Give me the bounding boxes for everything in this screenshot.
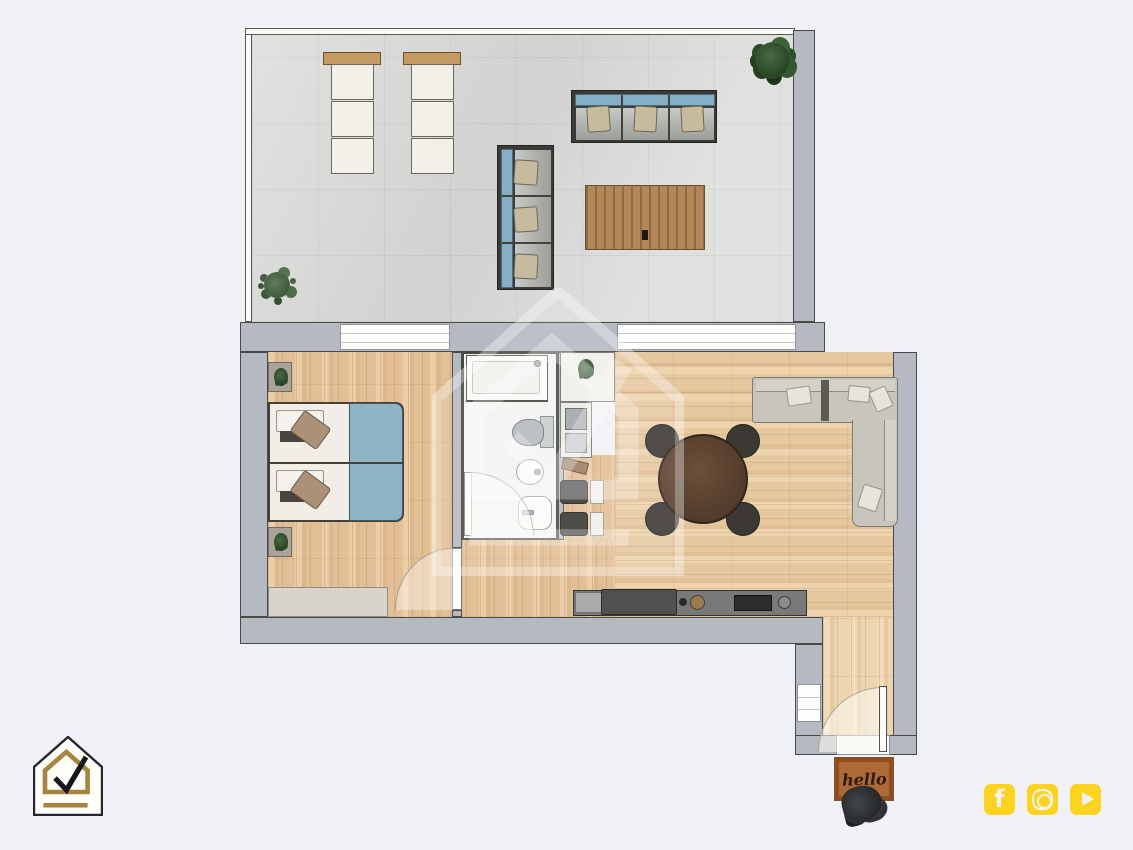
facebook-icon[interactable]: f: [984, 784, 1015, 815]
corner-sofa-vertical: [852, 420, 898, 527]
house-check-logo-icon: [33, 736, 103, 816]
sofa-pillow: [786, 385, 812, 406]
corridor-window: [797, 684, 821, 722]
nightstand: [268, 362, 292, 392]
nightstand-plant-icon: [274, 368, 288, 386]
instagram-icon[interactable]: [1027, 784, 1058, 815]
lounger-cushion: [331, 64, 374, 100]
sofa-pillow: [513, 253, 538, 279]
lounger-cushion: [411, 64, 454, 100]
seat-divider: [502, 242, 552, 244]
corner-sofa-horizontal: [752, 377, 898, 423]
sun-lounger: [403, 52, 461, 174]
seat-divider: [621, 95, 623, 141]
youtube-play-triangle: [1082, 792, 1094, 806]
instagram-dot: [1048, 791, 1051, 794]
sofa-back: [884, 420, 896, 521]
sofa-pillow: [586, 105, 611, 133]
potted-plant-icon: [756, 42, 790, 78]
wardrobe: [268, 587, 388, 617]
lounger-cushion: [331, 101, 374, 137]
lounger-cushion: [411, 138, 454, 174]
kitchen-counter: [573, 590, 807, 616]
cooktop: [734, 595, 772, 611]
bottom-wall: [240, 617, 823, 644]
table-handle: [642, 230, 648, 240]
terrace-wall-top: [245, 28, 795, 35]
counter-dark-slab: [601, 589, 677, 615]
small-tree-icon: [264, 272, 290, 298]
instagram-lens: [1037, 794, 1052, 809]
sofa-pillow: [513, 206, 539, 233]
double-bed: [268, 402, 404, 522]
counter-knob-icon: [679, 598, 687, 606]
sofa-back: [575, 94, 715, 106]
bed-split-line: [270, 462, 404, 464]
sofa-pillow: [633, 105, 657, 132]
bedroom-bathroom-wall-end: [452, 610, 462, 617]
seat-divider: [502, 195, 552, 197]
left-wall: [240, 352, 268, 617]
terrace-wall-right: [793, 30, 815, 322]
lounger-cushion: [411, 101, 454, 137]
sofa-pillow: [680, 105, 704, 132]
sofa-pillow: [847, 385, 871, 403]
seat-divider: [668, 95, 670, 141]
sofa-divider: [821, 380, 829, 421]
sofa-pillow: [857, 483, 883, 512]
sun-lounger: [323, 52, 381, 174]
outdoor-sofa-vertical: [497, 145, 554, 290]
floor-plan-canvas: hello f: [0, 0, 1133, 850]
entry-door-leaf: [879, 686, 887, 752]
nightstand: [268, 527, 292, 557]
lounger-cushion: [331, 138, 374, 174]
terrace-wall-left: [245, 28, 252, 322]
sofa-back: [501, 149, 513, 288]
youtube-icon[interactable]: [1070, 784, 1101, 815]
outdoor-sofa-horizontal: [571, 90, 717, 143]
nightstand-plant-icon: [274, 533, 288, 551]
house-check-watermark-icon: [432, 288, 684, 576]
outdoor-slat-table: [585, 185, 705, 250]
social-links: f: [984, 784, 1101, 815]
sofa-pillow: [513, 159, 539, 186]
sink-icon: [690, 595, 705, 610]
facebook-glyph: f: [984, 785, 1015, 813]
counter-pot-icon: [778, 596, 791, 609]
